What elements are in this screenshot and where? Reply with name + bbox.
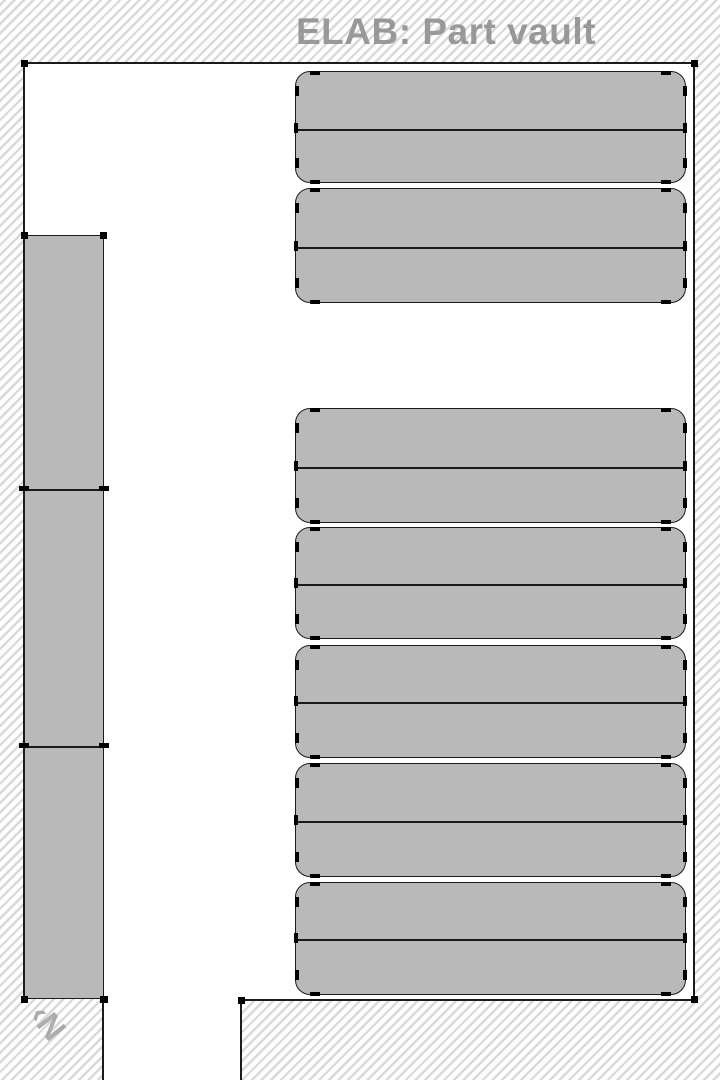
vertex-marker (295, 158, 299, 168)
vertex-marker (99, 743, 109, 748)
vertex-marker (683, 733, 687, 743)
vertex-marker (683, 158, 687, 168)
shelf-group[interactable] (295, 527, 686, 639)
vertex-marker (19, 743, 29, 748)
vertex-marker (661, 520, 671, 524)
vertex-marker (683, 241, 687, 251)
vertex-marker (21, 232, 28, 239)
shelf-group[interactable] (295, 882, 686, 995)
vertex-marker (661, 992, 671, 996)
vertex-marker (691, 60, 698, 67)
vertex-marker (295, 660, 299, 670)
vertex-marker (691, 996, 698, 1003)
vertex-marker (661, 645, 671, 649)
rack-segment-divider (25, 489, 103, 491)
vertex-marker (310, 300, 320, 304)
vertex-marker (661, 882, 671, 886)
vertex-marker (294, 123, 298, 133)
vertex-marker (310, 188, 320, 192)
vertex-marker (683, 123, 687, 133)
wall-notch-vertical (102, 998, 104, 1080)
vertex-marker (683, 970, 687, 980)
shelf-divider (296, 939, 685, 941)
shelf-group[interactable] (295, 645, 686, 758)
vertex-marker (683, 461, 687, 471)
shelf-divider (296, 129, 685, 131)
vertex-marker (310, 71, 320, 75)
vertex-marker (661, 408, 671, 412)
vertex-marker (683, 933, 687, 943)
vertex-marker (683, 203, 687, 213)
vertex-marker (683, 852, 687, 862)
vertex-marker (310, 755, 320, 759)
vertex-marker (295, 278, 299, 288)
vertex-marker (683, 778, 687, 788)
vertex-marker (294, 696, 298, 706)
vertex-marker (683, 86, 687, 96)
vertex-marker (683, 423, 687, 433)
shelf-group[interactable] (295, 763, 686, 877)
floorplan-canvas: ELAB: Part vault ‹N (0, 0, 720, 1080)
vertex-marker (295, 970, 299, 980)
vertex-marker (310, 763, 320, 767)
shelf-divider (296, 247, 685, 249)
wall-top (23, 62, 696, 64)
vertex-marker (310, 992, 320, 996)
wall-right (693, 62, 695, 1000)
vertex-marker (310, 527, 320, 531)
vertex-marker (295, 852, 299, 862)
doorway-corridor (104, 999, 240, 1080)
vertex-marker (19, 486, 29, 491)
vertex-marker (295, 86, 299, 96)
vertex-marker (661, 874, 671, 878)
vertex-marker (294, 933, 298, 943)
vertex-marker (295, 614, 299, 624)
vertex-marker (683, 614, 687, 624)
vertex-marker (295, 778, 299, 788)
shelf-group[interactable] (295, 71, 686, 183)
shelf-group[interactable] (295, 408, 686, 523)
vertex-marker (683, 542, 687, 552)
vertex-marker (310, 874, 320, 878)
vertex-marker (661, 71, 671, 75)
shelf-group[interactable] (295, 188, 686, 303)
vertex-marker (295, 542, 299, 552)
vertex-marker (661, 188, 671, 192)
vertex-marker (294, 815, 298, 825)
vertex-marker (238, 997, 245, 1004)
wall-corridor-right (240, 999, 242, 1080)
vertex-marker (100, 232, 107, 239)
vertex-marker (310, 520, 320, 524)
rack-segment-divider (25, 746, 103, 748)
page-title: ELAB: Part vault (296, 13, 596, 50)
vertex-marker (310, 408, 320, 412)
vertex-marker (683, 660, 687, 670)
north-indicator: ‹N (24, 998, 71, 1046)
wall-bottom-right (240, 999, 695, 1001)
vertex-marker (294, 241, 298, 251)
vertex-marker (310, 636, 320, 640)
vertex-marker (683, 696, 687, 706)
shelf-divider (296, 702, 685, 704)
vertex-marker (310, 180, 320, 184)
vertex-marker (310, 882, 320, 886)
vertex-marker (661, 180, 671, 184)
vertex-marker (661, 527, 671, 531)
vertex-marker (661, 636, 671, 640)
vertex-marker (295, 423, 299, 433)
vertex-marker (294, 578, 298, 588)
vertex-marker (295, 733, 299, 743)
shelf-divider (296, 584, 685, 586)
shelf-divider (296, 821, 685, 823)
vertex-marker (683, 815, 687, 825)
vertex-marker (21, 60, 28, 67)
vertex-marker (310, 645, 320, 649)
vertex-marker (21, 996, 28, 1003)
vertex-marker (683, 578, 687, 588)
vertex-marker (683, 897, 687, 907)
vertex-marker (683, 278, 687, 288)
vertex-marker (99, 486, 109, 491)
vertex-marker (295, 498, 299, 508)
left-rack-column[interactable] (24, 235, 104, 999)
vertex-marker (295, 203, 299, 213)
vertex-marker (295, 897, 299, 907)
shelf-divider (296, 467, 685, 469)
vertex-marker (683, 498, 687, 508)
vertex-marker (100, 996, 107, 1003)
vertex-marker (294, 461, 298, 471)
vertex-marker (661, 763, 671, 767)
vertex-marker (661, 755, 671, 759)
vertex-marker (661, 300, 671, 304)
